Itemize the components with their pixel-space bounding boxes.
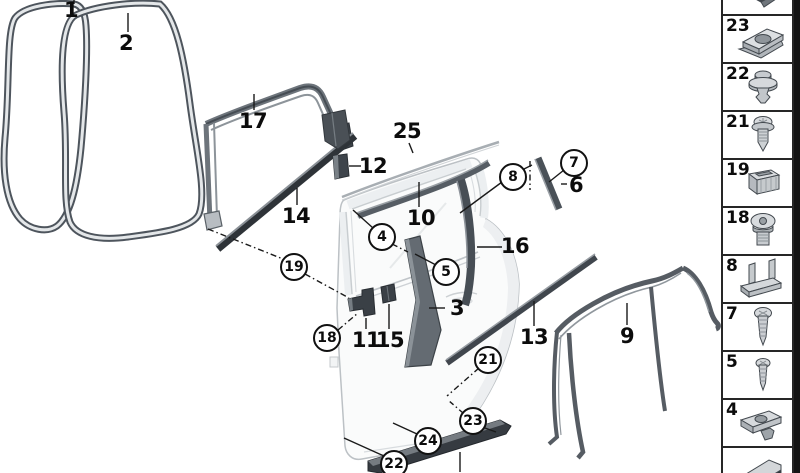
parts-diagram-page: 121714122510166311151394578181921222324 … — [0, 0, 800, 473]
part-callout-22[interactable]: 22 — [380, 450, 408, 473]
part-label-16[interactable]: 16 — [501, 234, 529, 258]
sidebar-cell-5[interactable]: 5 — [721, 350, 794, 400]
part-callout-7[interactable]: 7 — [560, 149, 588, 177]
part-callout-21[interactable]: 21 — [474, 346, 502, 374]
sidebar-cell-partial-10[interactable] — [721, 446, 794, 473]
sidebar-cell-number: 19 — [726, 160, 750, 180]
sidebar-cell-number: 8 — [726, 256, 738, 276]
sidebar-cell-number: 4 — [726, 400, 738, 420]
part-label-14[interactable]: 14 — [282, 204, 310, 228]
part-callout-23[interactable]: 23 — [459, 407, 487, 435]
part-label-10[interactable]: 10 — [407, 206, 435, 230]
part-label-12[interactable]: 12 — [359, 154, 387, 178]
sidebar-cell-number: 22 — [726, 64, 750, 84]
sidebar-cell-number: 23 — [726, 16, 750, 36]
part-label-17[interactable]: 17 — [239, 109, 267, 133]
part-callout-24[interactable]: 24 — [414, 427, 442, 455]
sidebar-cell-number: 5 — [726, 352, 738, 372]
part-label-13[interactable]: 13 — [520, 325, 548, 349]
part-label-15[interactable]: 15 — [376, 328, 404, 352]
part-callout-4[interactable]: 4 — [368, 223, 396, 251]
sidebar-cell-22[interactable]: 22 — [721, 62, 794, 112]
sidebar-cell-19[interactable]: 19 — [721, 158, 794, 208]
callout-labels-layer: 121714122510166311151394578181921222324 — [0, 0, 800, 473]
part-label-9[interactable]: 9 — [620, 324, 634, 348]
clip-partial-top-icon — [723, 0, 792, 14]
part-callout-19[interactable]: 19 — [280, 253, 308, 281]
sidebar-cell-number: 7 — [726, 304, 738, 324]
sidebar-cell-21[interactable]: 21 — [721, 110, 794, 160]
part-label-2[interactable]: 2 — [119, 31, 133, 55]
part-label-3[interactable]: 3 — [450, 296, 464, 320]
trim-corner-partial-icon — [723, 448, 792, 473]
part-callout-8[interactable]: 8 — [499, 163, 527, 191]
sidebar-cell-23[interactable]: 23 — [721, 14, 794, 64]
fastener-sidebar: 23222119188754 — [721, 0, 794, 473]
sidebar-cell-18[interactable]: 18 — [721, 206, 794, 256]
sidebar-cell-4[interactable]: 4 — [721, 398, 794, 448]
sidebar-cell-number: 21 — [726, 112, 750, 132]
page-edge-strip — [794, 0, 800, 473]
sidebar-cell-number: 18 — [726, 208, 750, 228]
part-callout-5[interactable]: 5 — [432, 258, 460, 286]
sidebar-cell-8[interactable]: 8 — [721, 254, 794, 304]
sidebar-cell-7[interactable]: 7 — [721, 302, 794, 352]
part-callout-18[interactable]: 18 — [313, 324, 341, 352]
part-label-1[interactable]: 1 — [64, 0, 78, 22]
part-label-25[interactable]: 25 — [393, 119, 421, 143]
